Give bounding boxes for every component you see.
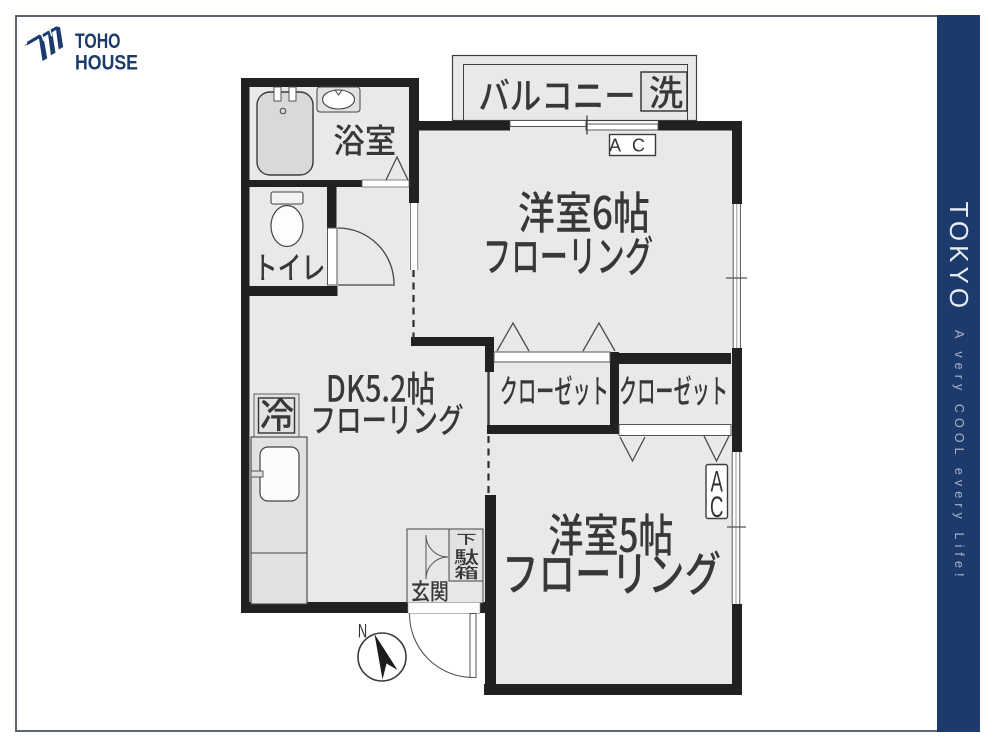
- svg-text:TOHO: TOHO: [75, 29, 121, 53]
- svg-text:A very COOL every Life!: A very COOL every Life!: [952, 330, 966, 582]
- svg-text:N: N: [358, 620, 367, 642]
- svg-text:HOUSE: HOUSE: [75, 51, 138, 75]
- svg-text:C: C: [710, 491, 723, 525]
- svg-text:AC: AC: [609, 136, 656, 156]
- svg-text:TOKYO: TOKYO: [944, 202, 974, 313]
